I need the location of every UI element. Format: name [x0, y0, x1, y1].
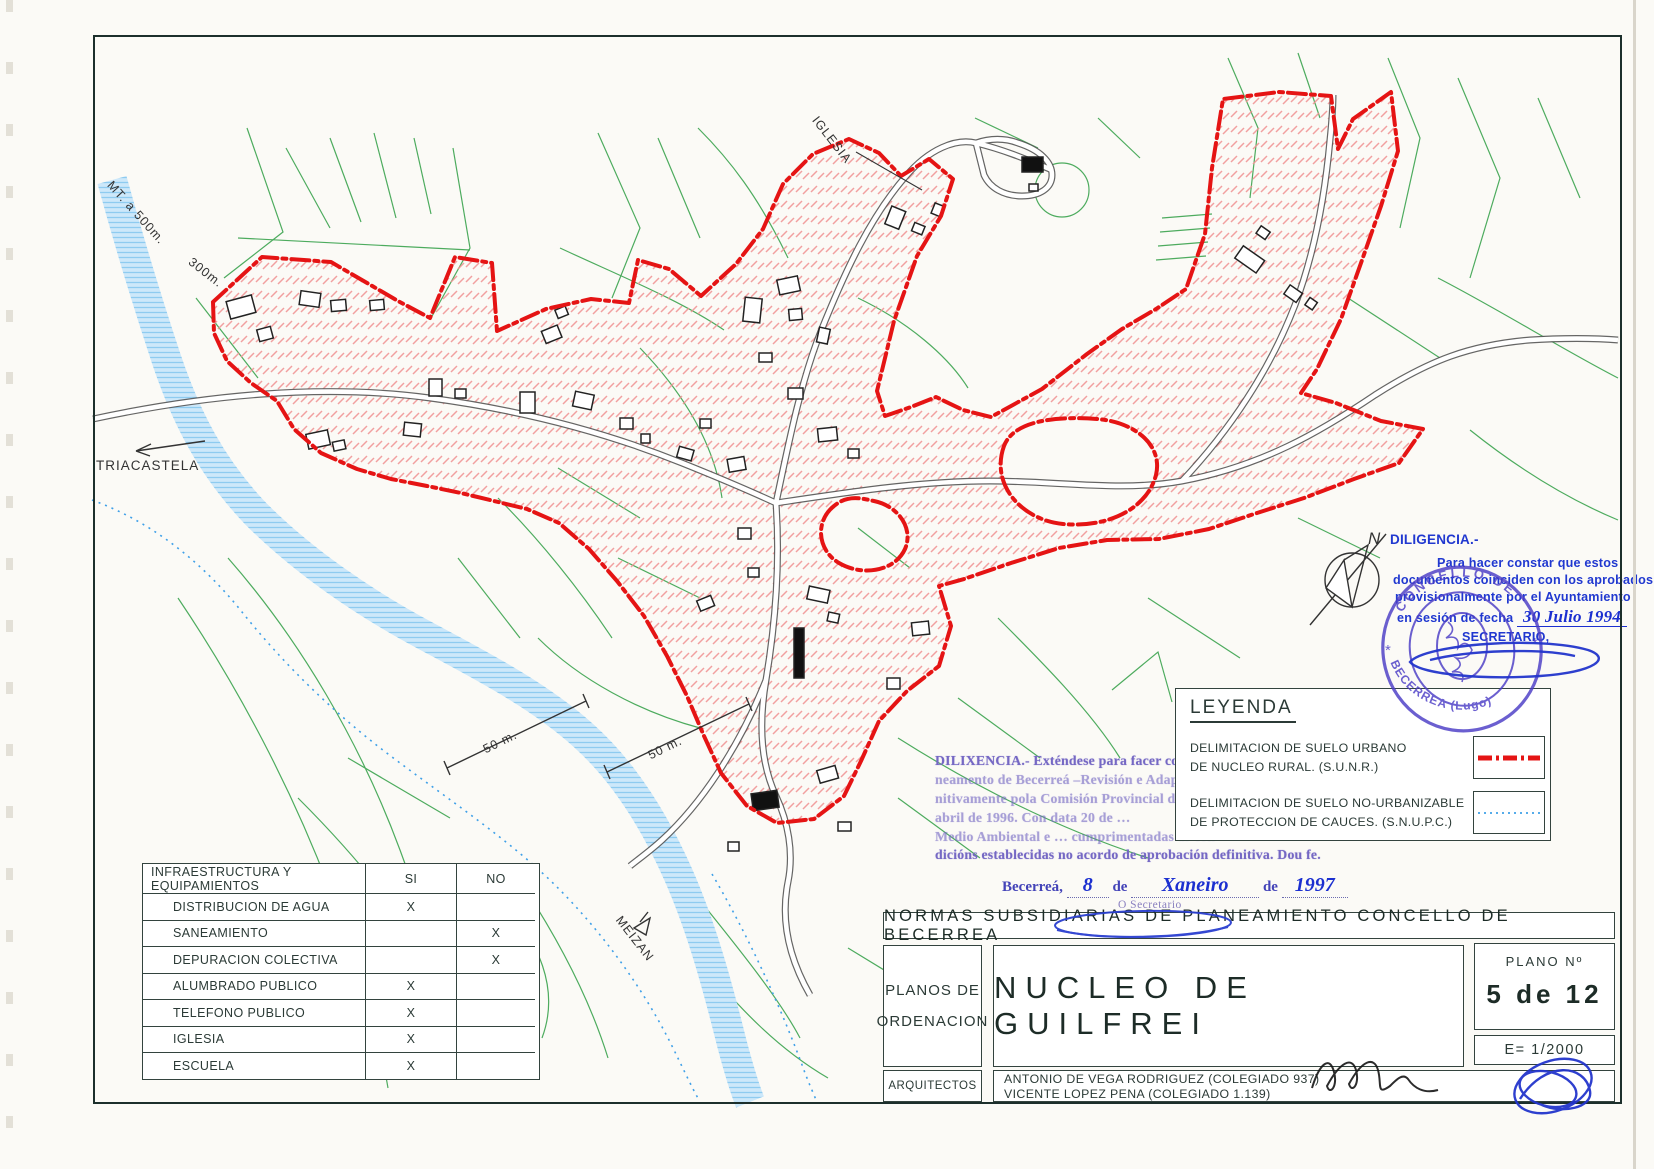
dilixencia-line: dicións establecidas no acordo de aproba… — [935, 847, 1520, 866]
table-cell-si: X — [366, 974, 457, 1001]
approval-date-line: Becerreá, 8 de Xaneiro de 1997 — [1002, 874, 1348, 898]
table-cell-no — [457, 974, 535, 1001]
legend-item-sunr: DELIMITACION DE SUELO URBANO DE NUCLEO R… — [1190, 739, 1407, 777]
title-block-series: PLANOS DE ORDENACION — [883, 945, 982, 1067]
legend-title: LEYENDA — [1190, 697, 1296, 723]
architects-names: ANTONIO DE VEGA RODRIGUEZ (COLEGIADO 937… — [993, 1070, 1615, 1102]
architect-1: ANTONIO DE VEGA RODRIGUEZ (COLEGIADO 937… — [1004, 1072, 1319, 1086]
legend-box: LEYENDA DELIMITACION DE SUELO URBANO DE … — [1175, 688, 1551, 841]
table-row-label: ALUMBRADO PUBLICO — [143, 974, 366, 1001]
table-header-col1: INFRAESTRUCTURA Y EQUIPAMIENTOS — [143, 864, 366, 894]
title-block-header: NORMAS SUBSIDIARIAS DE PLANEAMIENTO CONC… — [883, 912, 1615, 939]
handwritten-year: 1997 — [1282, 874, 1348, 898]
table-cell-no — [457, 894, 535, 921]
scanned-plan-sheet: { "map_labels": { "iglesia": "IGLESIA", … — [0, 0, 1654, 1169]
legend-symbol-sunr — [1473, 736, 1545, 779]
scale-box: E= 1/2000 — [1474, 1035, 1615, 1065]
table-row-label: DEPURACION COLECTIVA — [143, 947, 366, 974]
table-cell-no — [457, 1027, 535, 1054]
table-cell-si — [366, 947, 457, 974]
table-cell-no — [457, 1053, 535, 1079]
table-cell-si: X — [366, 1000, 457, 1027]
table-row-label: DISTRIBUCION DE AGUA — [143, 894, 366, 921]
plano-number-box: PLANO Nº 5 de 12 — [1474, 943, 1615, 1030]
table-cell-si: X — [366, 894, 457, 921]
architect-2: VICENTE LOPEZ PENA (COLEGIADO 1.139) — [1004, 1087, 1271, 1101]
blue-dotted-line-icon — [1476, 803, 1542, 823]
architects-label: ARQUITECTOS — [883, 1070, 982, 1102]
table-header-no: NO — [457, 864, 535, 894]
table-row-label: IGLESIA — [143, 1027, 366, 1054]
table-row-label: SANEAMIENTO — [143, 921, 366, 948]
table-cell-si: X — [366, 1027, 457, 1054]
table-cell-si — [366, 921, 457, 948]
handwritten-month: Xaneiro — [1131, 874, 1259, 898]
table-cell-no — [457, 1000, 535, 1027]
table-row-label: TELEFONO PUBLICO — [143, 1000, 366, 1027]
sheet-title: NUCLEO DE GUILFREI — [993, 945, 1464, 1067]
table-header-si: SI — [366, 864, 457, 894]
plano-number-label: PLANO Nº — [1475, 954, 1614, 969]
legend-item-snupc: DELIMITACION DE SUELO NO-URBANIZABLE DE … — [1190, 794, 1464, 832]
red-dash-dot-line-icon — [1476, 748, 1542, 768]
handwritten-day: 8 — [1067, 874, 1109, 898]
table-cell-no: X — [457, 921, 535, 948]
legend-symbol-snupc — [1473, 791, 1545, 834]
table-cell-no: X — [457, 947, 535, 974]
infrastructure-table: INFRAESTRUCTURA Y EQUIPAMIENTOS SI NO DI… — [142, 863, 540, 1080]
table-row-label: ESCUELA — [143, 1053, 366, 1079]
plano-number-value: 5 de 12 — [1475, 979, 1614, 1010]
table-cell-si: X — [366, 1053, 457, 1079]
